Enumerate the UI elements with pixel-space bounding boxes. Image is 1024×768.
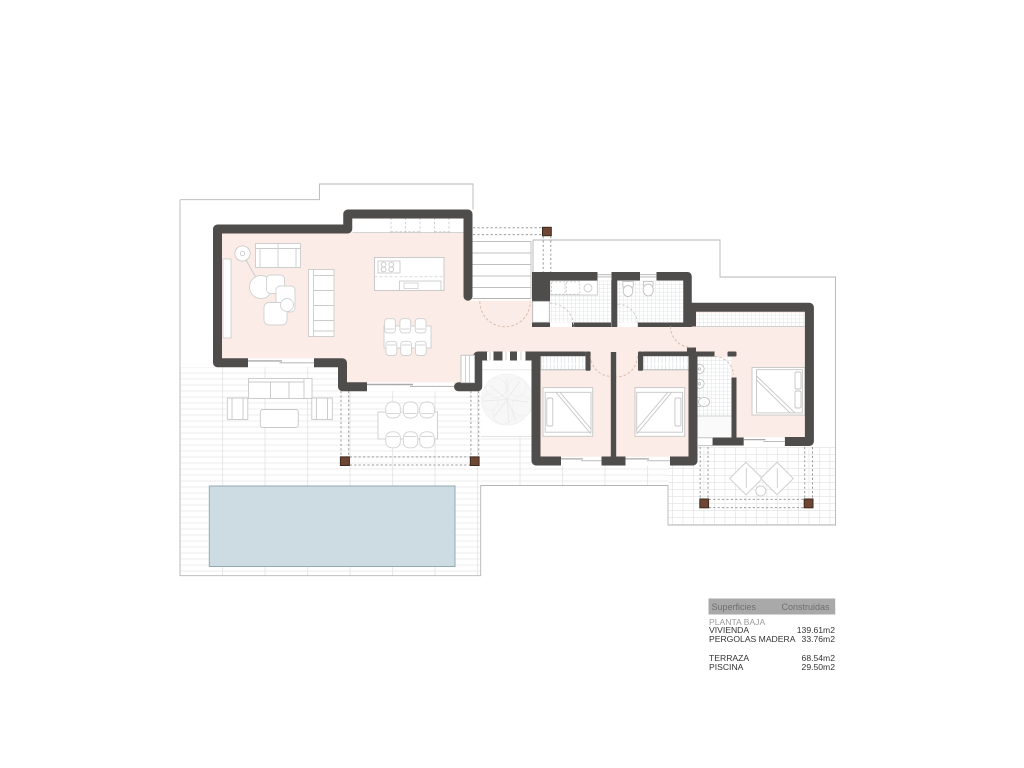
svg-text:Construidas: Construidas [782,602,831,612]
svg-text:Superficies: Superficies [712,602,757,612]
svg-text:33.76m2: 33.76m2 [802,634,836,644]
svg-text:PERGOLAS MADERA: PERGOLAS MADERA [709,634,796,644]
svg-text:29.50m2: 29.50m2 [802,662,836,672]
svg-text:PISCINA: PISCINA [709,662,744,672]
